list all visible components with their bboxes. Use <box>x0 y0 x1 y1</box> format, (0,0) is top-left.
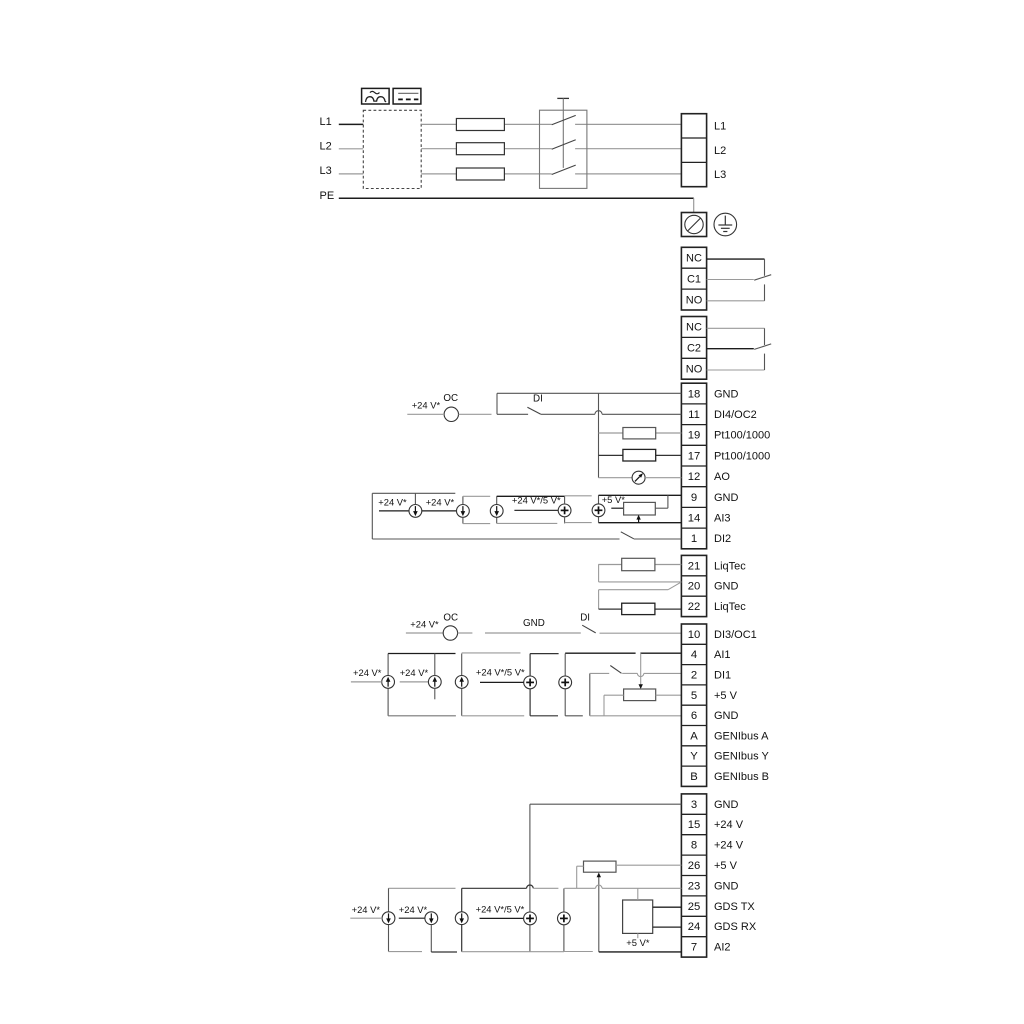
svg-text:5: 5 <box>691 690 697 702</box>
svg-text:NC: NC <box>686 322 702 334</box>
svg-text:Pt100/1000: Pt100/1000 <box>714 430 770 442</box>
svg-text:+24 V: +24 V <box>714 819 744 831</box>
svg-text:+24 V*: +24 V* <box>400 667 429 678</box>
svg-text:LiqTec: LiqTec <box>714 601 746 613</box>
svg-text:NO: NO <box>686 363 703 375</box>
svg-text:+24 V*: +24 V* <box>426 496 455 507</box>
svg-text:OC: OC <box>443 612 458 623</box>
svg-text:+24 V*/5 V*: +24 V*/5 V* <box>476 667 525 678</box>
svg-text:15: 15 <box>688 819 701 831</box>
svg-text:L2: L2 <box>320 141 332 153</box>
svg-text:B: B <box>690 771 698 783</box>
svg-text:GND: GND <box>714 581 739 593</box>
svg-text:24: 24 <box>688 921 701 933</box>
svg-text:AI1: AI1 <box>714 649 731 661</box>
svg-text:GENIbus B: GENIbus B <box>714 771 769 783</box>
svg-text:AO: AO <box>714 471 730 483</box>
svg-text:23: 23 <box>688 880 701 892</box>
svg-text:C1: C1 <box>687 273 701 285</box>
svg-text:A: A <box>690 730 698 742</box>
svg-text:6: 6 <box>691 710 697 722</box>
svg-text:3: 3 <box>691 799 697 811</box>
svg-text:DI4/OC2: DI4/OC2 <box>714 409 757 421</box>
svg-text:DI2: DI2 <box>714 533 731 545</box>
svg-text:GND: GND <box>714 388 739 400</box>
svg-text:DI3/OC1: DI3/OC1 <box>714 629 757 641</box>
svg-text:AI3: AI3 <box>714 512 731 524</box>
svg-text:17: 17 <box>688 450 701 462</box>
svg-text:+5 V: +5 V <box>714 860 738 872</box>
svg-text:C2: C2 <box>687 343 701 355</box>
svg-text:GND: GND <box>714 492 739 504</box>
svg-text:GND: GND <box>714 710 739 722</box>
svg-text:NC: NC <box>686 252 702 264</box>
svg-text:21: 21 <box>688 560 701 572</box>
svg-text:+24 V*: +24 V* <box>399 904 428 915</box>
svg-text:L1: L1 <box>714 121 726 133</box>
svg-text:+24 V*: +24 V* <box>412 399 441 410</box>
svg-text:DI: DI <box>533 393 543 404</box>
svg-text:L1: L1 <box>320 116 332 128</box>
svg-text:14: 14 <box>688 512 701 524</box>
svg-text:+24 V*: +24 V* <box>353 667 382 678</box>
svg-text:DI1: DI1 <box>714 669 731 681</box>
svg-text:DI: DI <box>580 612 590 623</box>
svg-text:NO: NO <box>686 294 703 306</box>
svg-text:OC: OC <box>443 393 458 404</box>
svg-text:20: 20 <box>688 581 701 593</box>
svg-text:+5 V: +5 V <box>714 690 738 702</box>
svg-text:10: 10 <box>688 629 701 641</box>
svg-text:+24 V*/5 V*: +24 V*/5 V* <box>512 494 561 505</box>
svg-text:12: 12 <box>688 471 701 483</box>
svg-text:GENIbus A: GENIbus A <box>714 730 769 742</box>
svg-text:L3: L3 <box>320 165 332 177</box>
svg-text:GDS TX: GDS TX <box>714 901 755 913</box>
svg-text:22: 22 <box>688 601 701 613</box>
svg-text:GDS RX: GDS RX <box>714 921 757 933</box>
svg-text:8: 8 <box>691 840 697 852</box>
svg-text:PE: PE <box>320 190 335 202</box>
svg-text:18: 18 <box>688 388 701 400</box>
svg-text:4: 4 <box>691 649 697 661</box>
svg-text:+5 V*: +5 V* <box>626 937 650 948</box>
svg-text:26: 26 <box>688 860 701 872</box>
svg-text:+24 V*: +24 V* <box>352 904 381 915</box>
svg-text:+24 V*: +24 V* <box>378 496 407 507</box>
svg-text:GND: GND <box>714 799 739 811</box>
svg-text:+24 V: +24 V <box>714 840 744 852</box>
svg-text:AI2: AI2 <box>714 942 731 954</box>
svg-text:19: 19 <box>688 430 701 442</box>
svg-text:9: 9 <box>691 492 697 504</box>
svg-text:7: 7 <box>691 942 697 954</box>
svg-text:L3: L3 <box>714 169 726 181</box>
svg-text:25: 25 <box>688 901 701 913</box>
svg-text:+5 V*: +5 V* <box>602 494 626 505</box>
svg-text:1: 1 <box>691 533 697 545</box>
svg-text:GENIbus Y: GENIbus Y <box>714 751 769 763</box>
svg-text:+24 V*: +24 V* <box>410 619 439 630</box>
svg-text:11: 11 <box>688 409 700 421</box>
svg-text:Pt100/1000: Pt100/1000 <box>714 450 770 462</box>
svg-text:2: 2 <box>691 669 697 681</box>
svg-text:+24 V*/5 V*: +24 V*/5 V* <box>476 904 525 915</box>
svg-text:Y: Y <box>690 751 698 763</box>
svg-text:L2: L2 <box>714 145 726 157</box>
svg-text:GND: GND <box>523 618 545 629</box>
svg-text:GND: GND <box>714 880 739 892</box>
svg-text:LiqTec: LiqTec <box>714 560 746 572</box>
